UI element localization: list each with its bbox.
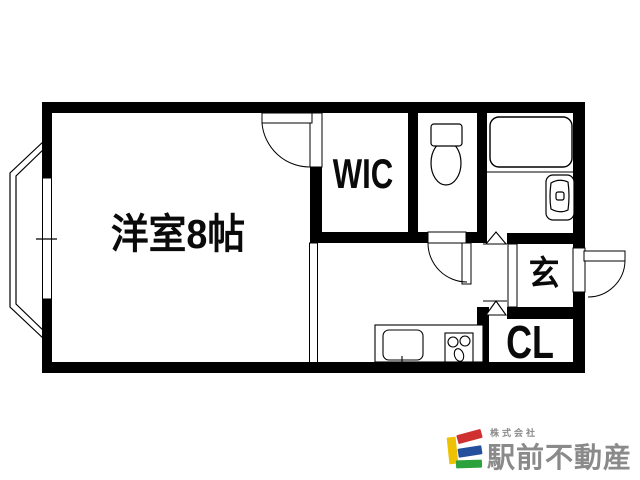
- wall-wic-bottom: [310, 232, 418, 243]
- bathtub-icon: [490, 117, 572, 167]
- wic-label: WIC: [331, 153, 395, 195]
- wall-toilet-bottom-right: [466, 232, 477, 243]
- logo-blue-bar-icon: [457, 445, 482, 458]
- wall-toilet-bottom-left: [418, 232, 428, 243]
- logo-green-bar-icon: [456, 460, 482, 469]
- right-wall-upper: [573, 102, 585, 249]
- washbasin-icon: [546, 175, 574, 220]
- entrance-door-leaf: [584, 251, 625, 261]
- wall-bath-bottom: [507, 233, 585, 244]
- logo-red-bar-icon: [456, 429, 482, 444]
- entrance-door-swing-arc: [588, 261, 625, 297]
- genkan-passage-opening: [508, 244, 517, 307]
- wic-door-swing-arc: [262, 123, 311, 167]
- wall-toilet-bath: [477, 108, 487, 243]
- left-wall-upper: [42, 102, 52, 179]
- right-wall-lower: [573, 292, 585, 373]
- kitchen-sink-icon: [383, 330, 423, 360]
- toilet-icon: [431, 124, 462, 185]
- wall-bedroom-wic: [310, 166, 322, 243]
- wic-door-icon: [262, 113, 322, 167]
- genkan-label: 玄: [526, 257, 562, 291]
- toilet-door-icon: [428, 232, 471, 284]
- main-room-label: 洋室8帖: [68, 214, 289, 255]
- closet-label: CL: [499, 319, 561, 365]
- entrance-door-icon: [573, 248, 625, 297]
- left-wall-lower: [42, 299, 52, 373]
- stove-icon: [445, 333, 473, 363]
- wic-door-leaf: [262, 113, 312, 123]
- company-logo: 株式会社 駅前不動産: [444, 422, 634, 474]
- floor-plan-page: 洋室8帖 WIC 玄 CL 株式会社 駅前不動産: [0, 0, 640, 480]
- toilet-door-swing-arc: [428, 243, 467, 282]
- top-wall: [42, 102, 585, 113]
- wall-wic-toilet: [408, 108, 418, 243]
- bedroom-kitchen-partition: [310, 243, 318, 363]
- company-name: 駅前不動産: [487, 436, 632, 476]
- toilet-door-leaf: [462, 243, 471, 284]
